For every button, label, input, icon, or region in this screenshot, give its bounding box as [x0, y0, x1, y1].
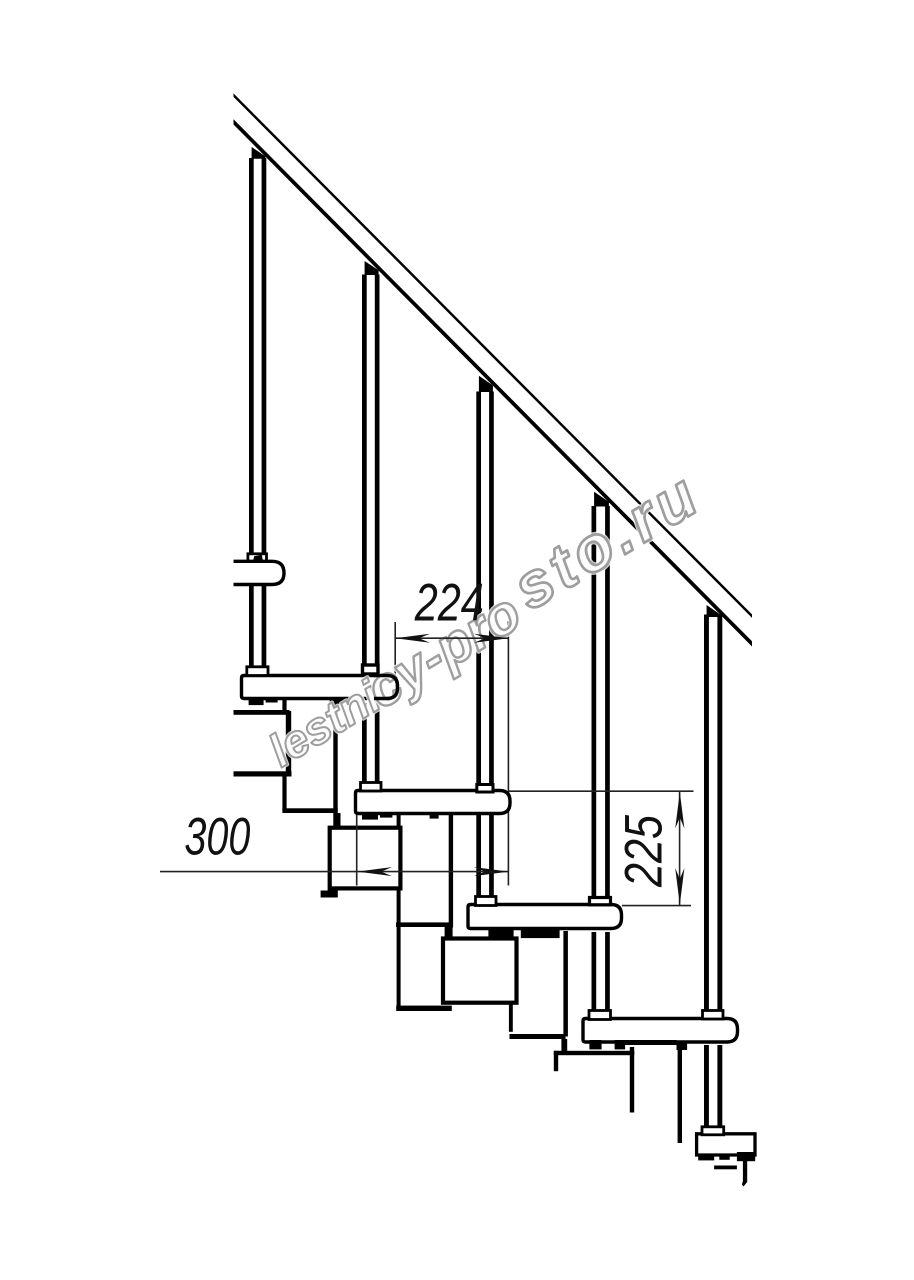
- svg-text:225: 225: [615, 815, 674, 888]
- svg-text:224: 224: [414, 574, 484, 633]
- svg-text:300: 300: [184, 807, 250, 866]
